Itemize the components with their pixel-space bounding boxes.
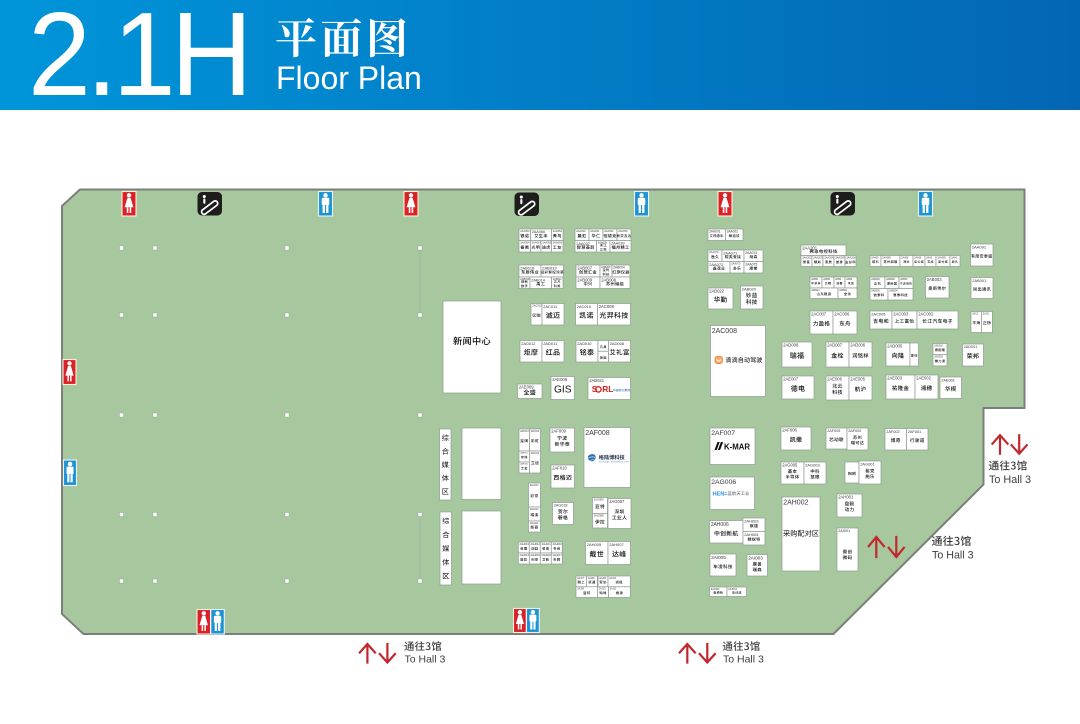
- svg-text:2AD003: 2AD003: [934, 356, 943, 359]
- svg-text:2AB005: 2AB005: [871, 289, 880, 292]
- svg-text:2AF013: 2AF013: [520, 430, 529, 433]
- svg-text:2AB013: 2AB013: [542, 265, 557, 270]
- svg-text:2AB021: 2AB021: [589, 378, 605, 383]
- svg-text:2AF003: 2AF003: [827, 429, 840, 433]
- svg-text:2AH014: 2AH014: [520, 553, 530, 557]
- svg-text:2AG011: 2AG011: [530, 522, 539, 525]
- svg-text:2AB001: 2AB001: [972, 278, 986, 283]
- svg-text:2AA0: 2AA0: [951, 256, 958, 259]
- svg-text:To Hall 3: To Hall 3: [405, 654, 446, 666]
- svg-text:2AF006: 2AF006: [782, 428, 797, 433]
- svg-text:2AD008: 2AD008: [783, 343, 799, 348]
- svg-text:2AG013: 2AG013: [530, 484, 539, 487]
- svg-text:2AA030: 2AA030: [576, 229, 586, 233]
- svg-text:2AF002: 2AF002: [848, 429, 861, 433]
- svg-text:2AB004: 2AB004: [613, 266, 625, 270]
- svg-text:HEN=: HEN=: [713, 491, 729, 497]
- svg-text:2AB016: 2AB016: [520, 265, 535, 270]
- svg-text:2AA001: 2AA001: [709, 230, 720, 234]
- svg-text:2AE003: 2AE003: [887, 376, 903, 381]
- svg-text:2AG009: 2AG009: [594, 498, 604, 502]
- svg-text:2AB01: 2AB01: [811, 278, 819, 281]
- svg-text:2AB008: 2AB008: [886, 278, 895, 281]
- svg-text:S: S: [592, 384, 598, 394]
- svg-text:2AF012: 2AF012: [531, 430, 540, 433]
- svg-text:2AA205: 2AA205: [835, 256, 845, 260]
- svg-text:2AI003: 2AI003: [748, 556, 763, 561]
- svg-text:2AC0: 2AC0: [983, 312, 990, 315]
- svg-text:2AH007: 2AH007: [609, 542, 624, 547]
- svg-text:2AA072: 2AA072: [709, 262, 723, 267]
- svg-text:2AC008: 2AC008: [712, 328, 737, 335]
- svg-text:2AA074: 2AA074: [745, 251, 757, 255]
- svg-text:2AA070: 2AA070: [709, 250, 719, 254]
- svg-text:2AE006: 2AE006: [827, 377, 842, 382]
- svg-text:2AD002: 2AD002: [934, 344, 943, 347]
- svg-text:2AG006: 2AG006: [711, 479, 736, 486]
- svg-text:2AB004: 2AB004: [889, 289, 898, 292]
- svg-text:2AA058: 2AA058: [542, 241, 552, 245]
- svg-text:2AH017: 2AH017: [553, 553, 563, 557]
- svg-text:2AB003: 2AB003: [927, 277, 943, 282]
- svg-text:2AA063: 2AA063: [520, 229, 530, 233]
- svg-text:2AH002: 2AH002: [783, 499, 808, 506]
- svg-text:2AH016: 2AH016: [542, 553, 552, 557]
- svg-text:2AF008: 2AF008: [585, 430, 610, 437]
- svg-text:2AC002: 2AC002: [918, 312, 934, 317]
- svg-text:2AA08: 2AA08: [914, 256, 922, 259]
- svg-text:2AB0: 2AB0: [835, 278, 842, 281]
- svg-text:2AB01: 2AB01: [823, 278, 831, 281]
- svg-text:2AB007: 2AB007: [577, 266, 593, 271]
- svg-text:To Hall 3: To Hall 3: [932, 550, 974, 562]
- svg-text:2AG012: 2AG012: [530, 508, 539, 511]
- svg-text:2AA052: 2AA052: [553, 229, 563, 233]
- svg-text:2AD007: 2AD007: [827, 343, 843, 348]
- svg-text:2AF011: 2AF011: [520, 452, 528, 455]
- svg-text:To Hall 3: To Hall 3: [989, 474, 1031, 486]
- svg-text:2AH013: 2AH013: [520, 542, 530, 546]
- svg-text:2AC012: 2AC012: [532, 304, 542, 308]
- svg-text:2AB009: 2AB009: [871, 278, 880, 281]
- svg-text:2AE009: 2AE009: [519, 385, 535, 390]
- svg-text:2AJ05: 2AJ05: [599, 577, 606, 580]
- svg-text:2AE002: 2AE002: [916, 376, 931, 381]
- svg-text:2AJ11: 2AJ11: [610, 588, 617, 591]
- svg-text:2AA067: 2AA067: [532, 241, 542, 245]
- svg-text:2AI001: 2AI001: [838, 529, 850, 533]
- svg-text:2AJ001: 2AJ001: [728, 587, 737, 591]
- svg-text:2AF010: 2AF010: [520, 463, 528, 466]
- svg-text:2AB014: 2AB014: [531, 277, 546, 282]
- svg-text:2AC006: 2AC006: [834, 312, 850, 317]
- svg-text:2AF014: 2AF014: [531, 452, 540, 455]
- svg-text:2AD008: 2AD008: [610, 341, 625, 346]
- svg-text:2AA09: 2AA09: [871, 256, 879, 259]
- svg-text:2AG005: 2AG005: [782, 463, 798, 468]
- svg-text:2AG003: 2AG003: [805, 462, 820, 467]
- svg-text:2AA08: 2AA08: [901, 256, 909, 259]
- svg-text:2AA071: 2AA071: [723, 250, 737, 255]
- svg-text:2AH015: 2AH015: [531, 553, 541, 557]
- svg-text:2AA032: 2AA032: [604, 229, 614, 233]
- svg-text:2AA202: 2AA202: [802, 256, 812, 260]
- svg-text:2AB011: 2AB011: [839, 289, 848, 292]
- svg-text:2AB005: 2AB005: [601, 265, 611, 269]
- svg-text:2AB022: 2AB022: [709, 289, 725, 294]
- svg-text:GLOBAL TECHNOLOGY: GLOBAL TECHNOLOGY: [599, 460, 630, 463]
- svg-text:2AA085: 2AA085: [937, 256, 946, 259]
- svg-text:2AD010: 2AD010: [577, 341, 592, 346]
- svg-text:2AH004: 2AH004: [744, 532, 759, 537]
- svg-text:2AA059: 2AA059: [553, 241, 563, 245]
- svg-text:2AI005: 2AI005: [711, 555, 726, 560]
- svg-text:To Hall 3: To Hall 3: [723, 654, 764, 666]
- svg-text:2AG007: 2AG007: [609, 499, 625, 504]
- svg-text:2AF001: 2AF001: [908, 429, 922, 434]
- svg-text:2AC005: 2AC005: [871, 311, 886, 316]
- svg-text:2AE007: 2AE007: [783, 377, 799, 382]
- svg-text:2AC010: 2AC010: [577, 304, 592, 309]
- svg-text:2AG001: 2AG001: [860, 461, 875, 466]
- svg-text:2AA204: 2AA204: [824, 256, 834, 260]
- svg-text:2AE005: 2AE005: [850, 377, 865, 382]
- svg-text:2AJ06: 2AJ06: [588, 577, 595, 580]
- svg-text:2AA203: 2AA203: [813, 256, 823, 260]
- svg-text:2AG018: 2AG018: [554, 504, 568, 508]
- svg-text:2AC0: 2AC0: [972, 312, 979, 315]
- svg-text:2AA089: 2AA089: [882, 256, 891, 259]
- svg-text:2AD011: 2AD011: [543, 341, 557, 346]
- svg-text:2AJ08: 2AJ08: [577, 588, 584, 591]
- svg-text:2AD006: 2AD006: [850, 343, 866, 348]
- svg-text:2AC003: 2AC003: [893, 312, 909, 317]
- svg-text:2AC008: 2AC008: [599, 304, 615, 309]
- svg-text:2AB009: 2AB009: [577, 278, 593, 283]
- svg-text:2AF010: 2AF010: [552, 466, 567, 471]
- svg-text:2AH010: 2AH010: [553, 542, 563, 546]
- svg-text:2AJ002: 2AJ002: [711, 587, 720, 591]
- svg-text:2AC007: 2AC007: [811, 312, 827, 317]
- svg-text:GIS: GIS: [554, 385, 572, 396]
- svg-text:2AH003: 2AH003: [744, 518, 759, 523]
- svg-text:2AA031: 2AA031: [590, 229, 600, 233]
- svg-text:2AA039: 2AA039: [611, 242, 624, 246]
- svg-text:2AA073: 2AA073: [731, 262, 741, 266]
- svg-text:2AD012: 2AD012: [521, 341, 535, 346]
- svg-text:2AH011: 2AH011: [542, 542, 552, 546]
- svg-text:2AB0: 2AB0: [846, 278, 853, 281]
- svg-text:2AA037: 2AA037: [576, 241, 590, 246]
- svg-text:2AJ07: 2AJ07: [577, 577, 584, 580]
- svg-text:2AJ04: 2AJ04: [609, 577, 616, 580]
- svg-text:2AF009: 2AF009: [551, 429, 566, 434]
- svg-text:2AA066: 2AA066: [532, 230, 545, 234]
- svg-text:2AA091: 2AA091: [972, 244, 987, 249]
- svg-text:2AE008: 2AE008: [552, 377, 568, 382]
- svg-text:K-MAR: K-MAR: [724, 443, 750, 452]
- svg-text:2AC011: 2AC011: [543, 304, 557, 309]
- svg-text:2AH006: 2AH006: [711, 522, 729, 528]
- svg-text:2AE001: 2AE001: [941, 377, 955, 382]
- svg-text:2AA064: 2AA064: [520, 241, 530, 245]
- svg-text:2AA075: 2AA075: [745, 262, 757, 266]
- svg-text:2AA033: 2AA033: [618, 229, 628, 233]
- svg-text:2AD005: 2AD005: [887, 344, 903, 349]
- svg-text:2AF002: 2AF002: [886, 429, 900, 434]
- svg-text:2AD001: 2AD001: [964, 345, 978, 349]
- svg-text:2AB012: 2AB012: [811, 289, 820, 292]
- svg-text:2AF007: 2AF007: [711, 430, 735, 437]
- svg-text:2AB00: 2AB00: [900, 278, 908, 281]
- svg-text:2AH001: 2AH001: [838, 495, 854, 500]
- svg-text:2AH005: 2AH005: [587, 542, 602, 547]
- svg-text:RL: RL: [602, 384, 613, 394]
- svg-text:2AB020: 2AB020: [742, 286, 757, 291]
- svg-text:2AA002: 2AA002: [727, 230, 738, 234]
- svg-text:2AA0: 2AA0: [926, 256, 933, 259]
- svg-text:2AA206: 2AA206: [846, 256, 856, 260]
- svg-text:2AG008: 2AG008: [594, 514, 604, 518]
- svg-text:2AJ10: 2AJ10: [599, 588, 606, 591]
- svg-text:2AH012: 2AH012: [531, 542, 541, 546]
